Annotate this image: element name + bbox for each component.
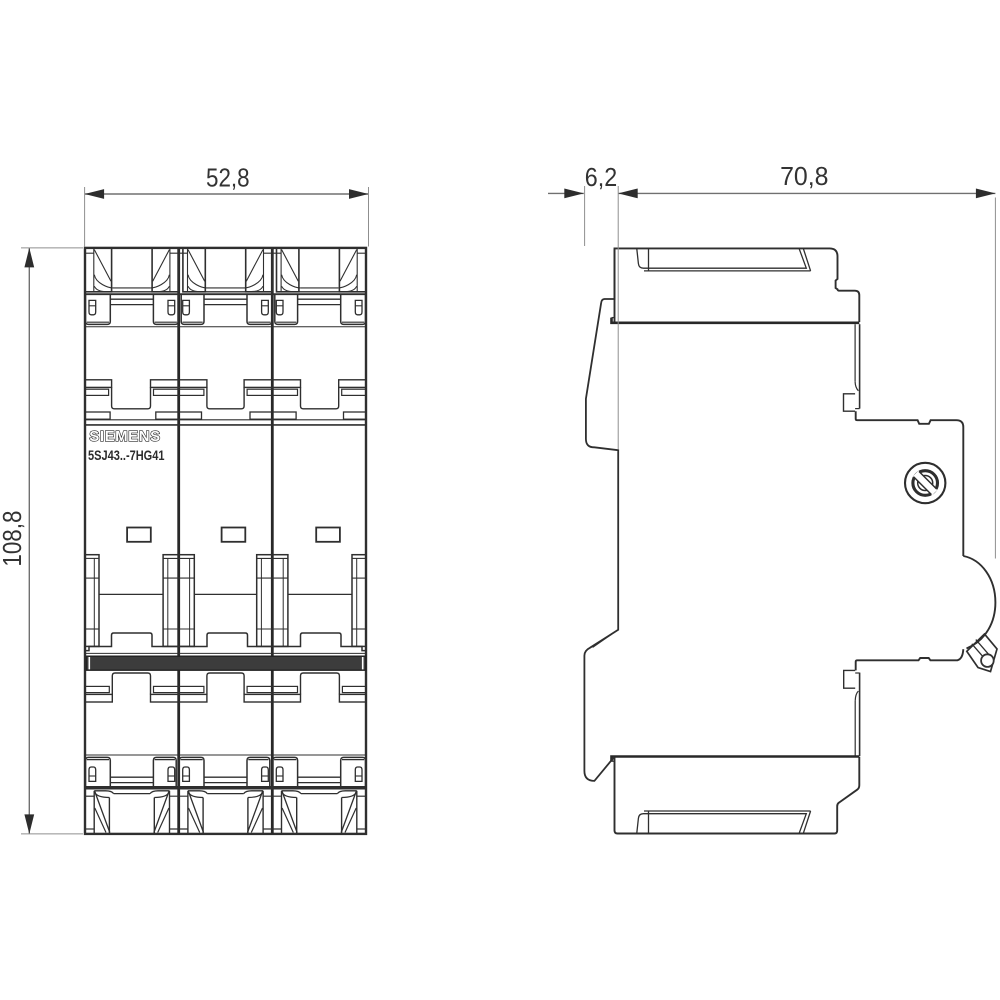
svg-text:108,8: 108,8: [0, 511, 27, 567]
svg-text:70,8: 70,8: [780, 161, 828, 191]
svg-text:52,8: 52,8: [206, 162, 250, 192]
svg-text:5SJ43..-7HG41: 5SJ43..-7HG41: [88, 448, 165, 464]
svg-text:SIEMENS: SIEMENS: [89, 428, 160, 445]
svg-text:6,2: 6,2: [585, 162, 617, 192]
